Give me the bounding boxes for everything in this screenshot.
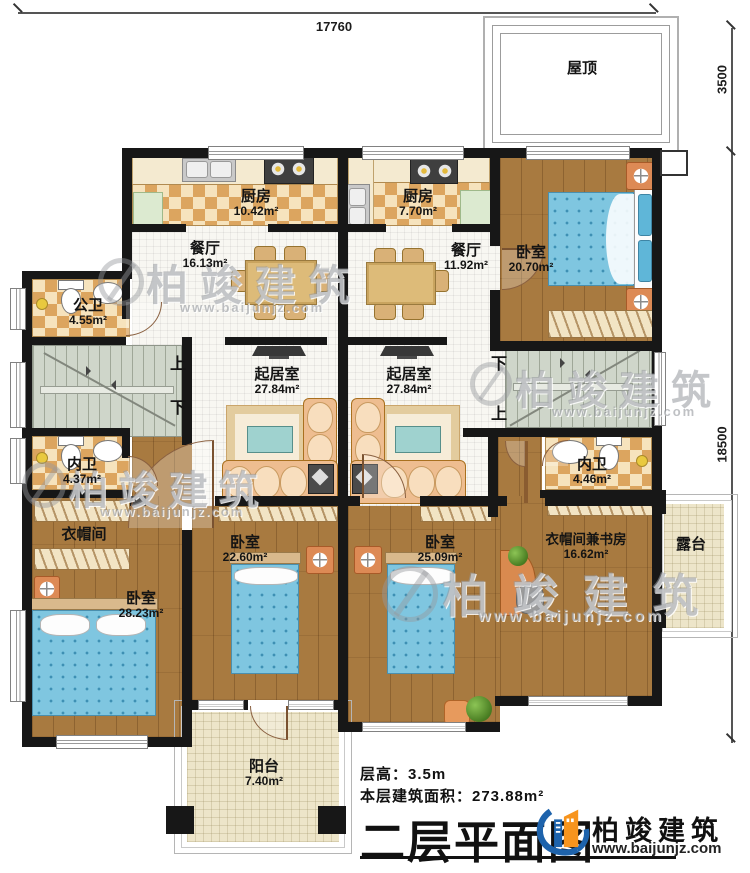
- room-label-terrace: 露台: [676, 536, 706, 553]
- coffee-table: [395, 426, 441, 453]
- room-name: 内卫: [573, 456, 611, 473]
- window: [362, 146, 464, 160]
- window: [198, 700, 244, 710]
- bed-blanket-fold: [606, 194, 634, 284]
- pillow: [638, 194, 652, 236]
- room-name: 衣帽间: [61, 526, 106, 543]
- room-area: 4.37m²: [63, 473, 101, 487]
- room-area: 7.70m²: [399, 205, 437, 219]
- floor-area-text: 本层建筑面积：273.88m²: [360, 785, 544, 806]
- stair-arrow: [86, 366, 96, 376]
- potted-plant: [466, 696, 492, 722]
- coffee-table: [247, 426, 293, 453]
- window: [10, 610, 26, 702]
- window: [526, 146, 630, 160]
- room-name: 阳台: [245, 758, 283, 775]
- stairs-down-label: 下: [491, 350, 507, 374]
- window: [10, 288, 26, 330]
- window: [10, 362, 26, 428]
- floor-height-text: 层高：3.5m: [360, 763, 446, 784]
- shower-fixture: [36, 298, 48, 310]
- window: [288, 700, 334, 710]
- dimension-body-depth: 18500: [715, 415, 730, 475]
- room-area: 4.46m²: [573, 473, 611, 487]
- window: [208, 146, 304, 160]
- window: [56, 735, 148, 749]
- watermark-logo: [22, 462, 66, 508]
- room-area: 11.92m²: [444, 259, 488, 273]
- pillow: [40, 614, 90, 636]
- brand-url: www.baijunjz.com: [592, 840, 721, 857]
- sofa-cushion: [355, 402, 381, 433]
- watermark-url: www.baijunjz.com: [100, 504, 244, 519]
- wall: [225, 337, 327, 345]
- room-label-bedroom-sw: 卧室28.23m²: [119, 590, 164, 621]
- room-label-living-1: 起居室27.84m²: [254, 366, 299, 397]
- room-area: 16.13m²: [183, 257, 228, 271]
- room-area: 20.70m²: [509, 261, 554, 275]
- room-name: 卧室: [223, 534, 268, 551]
- room-area: 27.84m²: [386, 383, 431, 397]
- tv: [380, 346, 434, 356]
- wall: [348, 496, 360, 506]
- room-name: 卧室: [418, 534, 463, 551]
- closet-rail: [548, 310, 656, 338]
- watermark-logo-bar: [107, 263, 136, 302]
- wall: [122, 428, 130, 458]
- room-label-public-bath: 公卫4.55m²: [69, 297, 107, 328]
- room-name: 内卫: [63, 456, 101, 473]
- sofa-cushion: [408, 466, 435, 498]
- watermark-url: www.baijunjz.com: [180, 300, 324, 315]
- wall: [22, 428, 130, 436]
- room-name: 公卫: [69, 297, 107, 314]
- room-label-dining-1: 餐厅16.13m²: [183, 240, 228, 271]
- brand-logo-svg: [536, 806, 590, 856]
- room-label-bath-east: 内卫4.46m²: [573, 456, 611, 487]
- room-name: 餐厅: [444, 242, 488, 259]
- refrigerator: [460, 190, 492, 228]
- dimension-top-width: 17760: [284, 19, 384, 34]
- room-label-bedroom-s2: 卧室25.09m²: [418, 534, 463, 565]
- room-name: 餐厅: [183, 240, 228, 257]
- nightstand-lamp: [306, 546, 334, 574]
- dining-chair: [374, 303, 396, 320]
- room-label-cloak: 衣帽间: [61, 526, 106, 543]
- wall: [130, 224, 186, 232]
- room-area: 22.60m²: [223, 551, 268, 565]
- wall: [22, 337, 126, 345]
- room-label-living-2: 起居室27.84m²: [386, 366, 431, 397]
- window: [362, 722, 466, 732]
- room-name: 起居室: [386, 366, 431, 383]
- dining-table: [366, 262, 436, 305]
- roof-outline-inner: [500, 33, 662, 135]
- closet-rail: [34, 548, 130, 570]
- room-area: 4.55m²: [69, 314, 107, 328]
- room-label-balcony: 阳台7.40m²: [245, 758, 283, 789]
- stairs-up-label: 上: [170, 350, 186, 374]
- stove: [264, 156, 314, 184]
- room-area: 7.40m²: [245, 775, 283, 789]
- wall: [338, 148, 348, 722]
- sofa-cushion: [280, 466, 307, 498]
- stove: [410, 158, 458, 184]
- tv-stand: [397, 356, 417, 359]
- tv: [252, 346, 306, 356]
- stairs-up-label: 上: [491, 400, 507, 424]
- room-name: 厨房: [234, 188, 279, 205]
- wall: [347, 337, 447, 345]
- room-area: 16.62m²: [546, 548, 627, 562]
- wall: [348, 224, 386, 232]
- room-name: 屋顶: [567, 60, 597, 77]
- wall: [268, 224, 338, 232]
- room-name: 卧室: [119, 590, 164, 607]
- wall: [545, 496, 662, 506]
- floor-plan-canvas: 17760 3500 18500: [0, 0, 750, 873]
- room-area: 27.84m²: [254, 383, 299, 397]
- room-label-bedroom-s1: 卧室22.60m²: [223, 534, 268, 565]
- room-label-bath-west: 内卫4.37m²: [63, 456, 101, 487]
- brand-logo-icon: [536, 806, 590, 856]
- room-label-cloak-study: 衣帽间兼书房16.62m²: [546, 532, 627, 561]
- nightstand-lamp: [354, 546, 382, 574]
- tv-stand: [269, 356, 289, 359]
- pillow: [234, 567, 298, 585]
- wall: [452, 224, 490, 232]
- sofa-cushion: [307, 402, 333, 433]
- watermark-url: www.baijunjz.com: [552, 404, 696, 419]
- room-name: 露台: [676, 536, 706, 553]
- chimney: [660, 150, 688, 176]
- balcony-post: [318, 806, 346, 834]
- stair-arrow: [106, 380, 116, 390]
- wall: [183, 700, 192, 747]
- room-label-kitchen-2: 厨房7.70m²: [399, 188, 437, 219]
- refrigerator: [133, 192, 163, 228]
- room-name: 厨房: [399, 188, 437, 205]
- sofa-cushion: [435, 466, 462, 498]
- stairs-down-label: 下: [170, 394, 186, 418]
- room-area: 28.23m²: [119, 607, 164, 621]
- room-name: 卧室: [509, 244, 554, 261]
- room-label-dining-2: 餐厅11.92m²: [444, 242, 488, 273]
- wall: [490, 341, 662, 351]
- balcony-post: [166, 806, 194, 834]
- watermark-logo-bar: [31, 467, 59, 504]
- watermark-logo: [382, 566, 438, 622]
- room-label-bedroom-ne: 卧室20.70m²: [509, 244, 554, 275]
- dining-chair: [402, 303, 424, 320]
- closet-rail: [420, 506, 492, 522]
- wall: [652, 490, 666, 514]
- room-name: 起居室: [254, 366, 299, 383]
- room-name: 衣帽间兼书房: [546, 532, 627, 548]
- window: [528, 696, 628, 706]
- sink-basin: [186, 161, 208, 178]
- sink-basin: [349, 207, 366, 225]
- sink-basin: [210, 161, 232, 178]
- wall: [490, 148, 500, 246]
- pillow: [638, 240, 652, 282]
- dimension-line-top: [18, 12, 656, 14]
- wall: [420, 496, 500, 506]
- sink-basin: [349, 188, 366, 206]
- room-label-kitchen-1: 厨房10.42m²: [234, 188, 279, 219]
- wall: [463, 428, 662, 437]
- room-label-roof: 屋顶: [567, 60, 597, 77]
- watermark-logo-bar: [393, 570, 429, 617]
- watermark-url: www.baijunjz.com: [478, 608, 664, 626]
- room-area: 25.09m²: [418, 551, 463, 565]
- room-area: 10.42m²: [234, 205, 279, 219]
- dimension-roof-depth: 3500: [715, 50, 730, 110]
- shower-fixture: [636, 455, 648, 467]
